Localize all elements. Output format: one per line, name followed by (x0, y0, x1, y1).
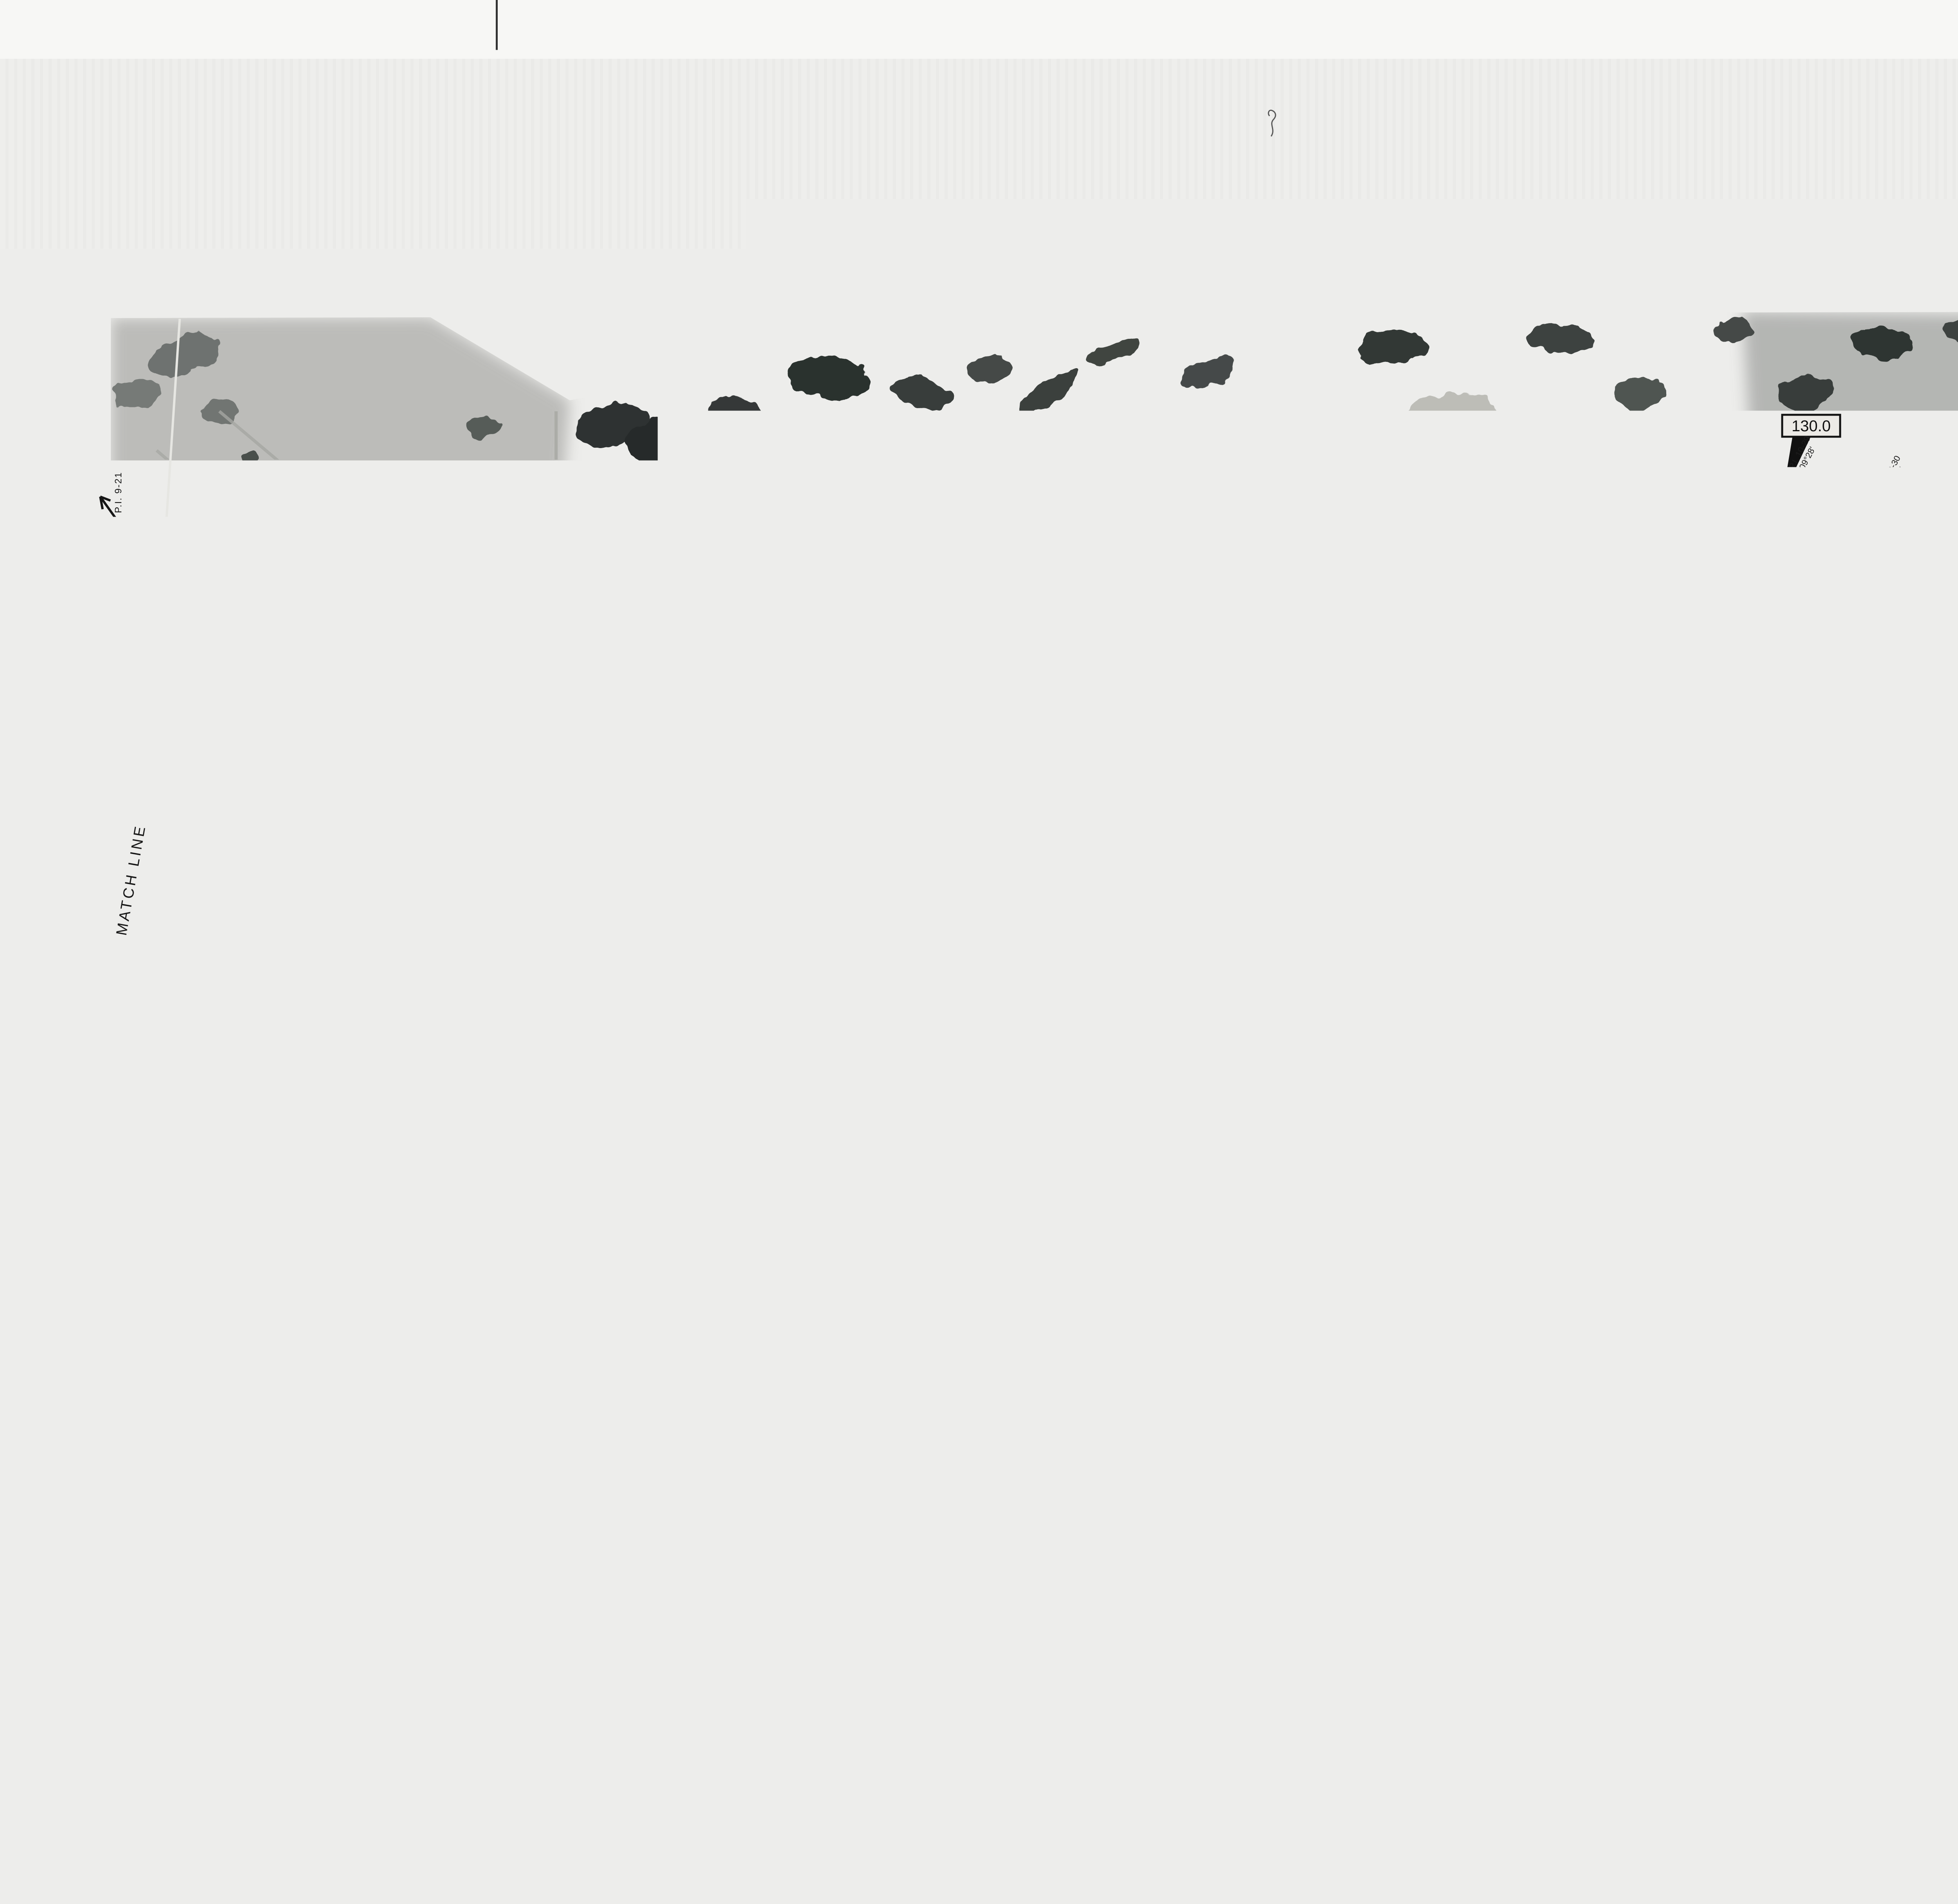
svg-text:68198: 68198 (26, 829, 45, 1092)
svg-text:CANADA LANDS SURVEYS RECORDS: CANADA LANDS SURVEYS RECORDS (8, 814, 20, 1014)
